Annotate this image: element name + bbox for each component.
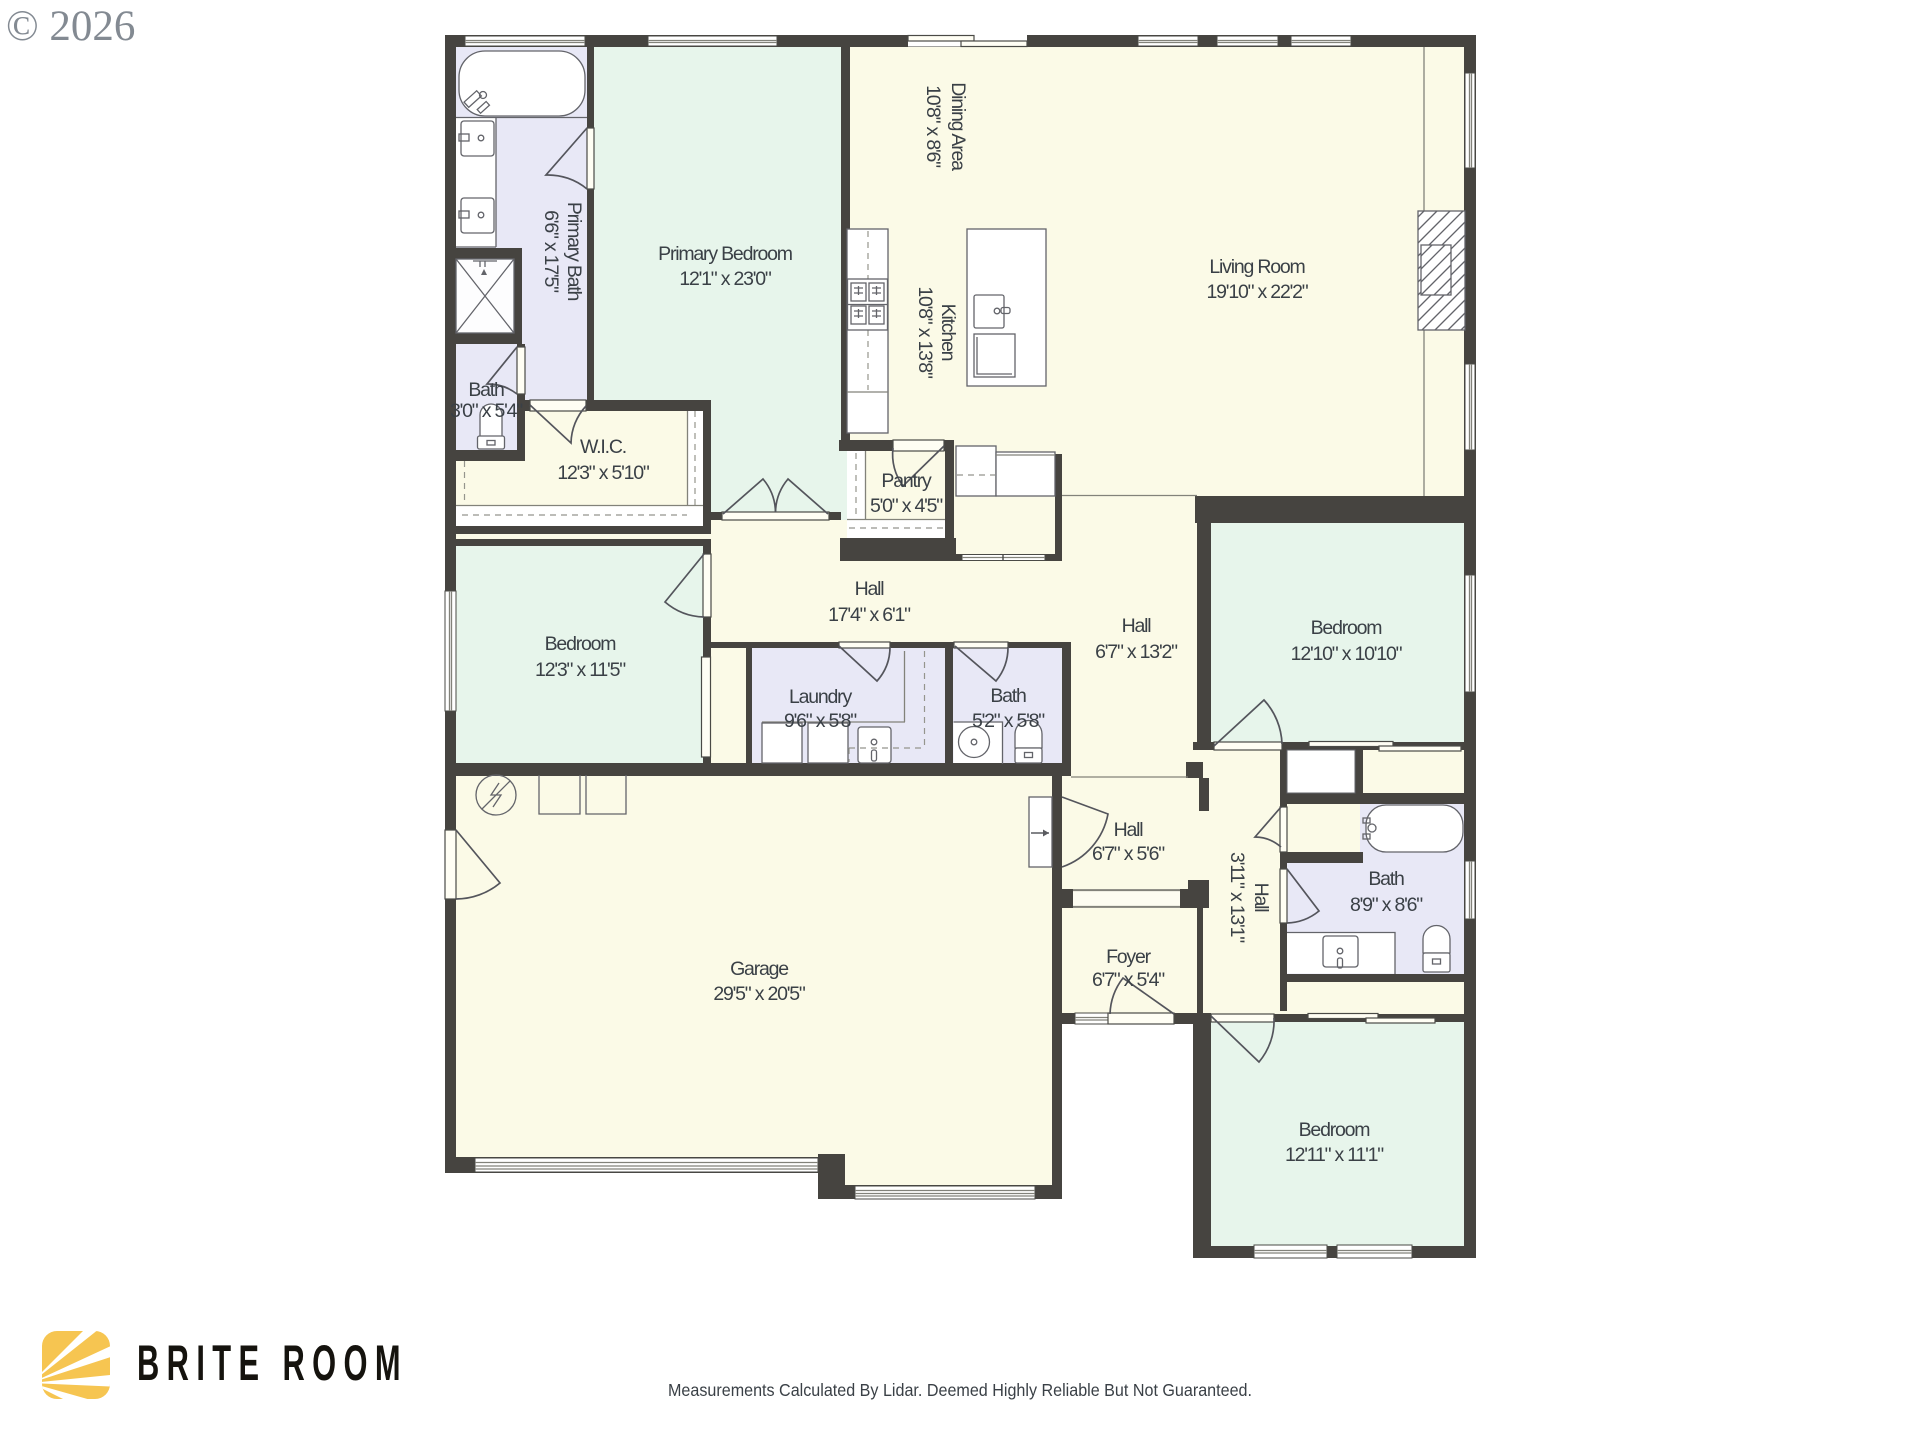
- svg-text:Pantry: Pantry: [881, 470, 932, 492]
- svg-text:12'1" x 23'0": 12'1" x 23'0": [679, 268, 772, 290]
- svg-text:Hall: Hall: [1250, 883, 1272, 913]
- svg-text:19'10" x 22'2": 19'10" x 22'2": [1207, 281, 1309, 303]
- svg-text:3'11" x 13'1": 3'11" x 13'1": [1226, 852, 1248, 943]
- svg-text:Bath: Bath: [990, 685, 1026, 707]
- svg-text:Bath: Bath: [468, 379, 504, 401]
- svg-text:3'0" x 5'4": 3'0" x 5'4": [450, 400, 523, 422]
- svg-text:© 2026: © 2026: [6, 3, 135, 50]
- svg-text:10'8" x 8'6": 10'8" x 8'6": [922, 85, 944, 168]
- svg-text:5'0" x 4'5": 5'0" x 4'5": [870, 495, 943, 517]
- svg-text:Measurements Calculated By Lid: Measurements Calculated By Lidar. Deemed…: [668, 1380, 1252, 1400]
- svg-text:17'4" x 6'1": 17'4" x 6'1": [828, 604, 911, 626]
- svg-text:5'2" x 5'8": 5'2" x 5'8": [972, 710, 1045, 732]
- svg-text:Bedroom: Bedroom: [1311, 617, 1382, 639]
- svg-text:12'3" x 5'10": 12'3" x 5'10": [557, 462, 650, 484]
- svg-text:12'3" x 11'5": 12'3" x 11'5": [535, 659, 626, 681]
- svg-text:6'7" x 5'4": 6'7" x 5'4": [1092, 969, 1165, 991]
- svg-text:Kitchen: Kitchen: [937, 304, 959, 361]
- svg-text:Primary Bedroom: Primary Bedroom: [658, 243, 792, 265]
- svg-text:9'6" x 5'8": 9'6" x 5'8": [784, 710, 857, 732]
- svg-text:Hall: Hall: [1114, 819, 1144, 841]
- svg-text:Garage: Garage: [730, 958, 788, 980]
- svg-text:Hall: Hall: [1122, 615, 1152, 637]
- svg-text:6'6" x 17'5": 6'6" x 17'5": [540, 210, 562, 293]
- svg-text:Dining Area: Dining Area: [947, 82, 969, 171]
- svg-text:Bedroom: Bedroom: [545, 633, 616, 655]
- svg-text:Bath: Bath: [1368, 868, 1404, 890]
- svg-text:10'8" x 13'8": 10'8" x 13'8": [914, 286, 936, 379]
- svg-text:29'5" x 20'5": 29'5" x 20'5": [713, 983, 806, 1005]
- svg-text:Bedroom: Bedroom: [1299, 1119, 1370, 1141]
- svg-text:8'9" x 8'6": 8'9" x 8'6": [1350, 894, 1423, 916]
- svg-text:Hall: Hall: [855, 578, 885, 600]
- svg-text:Laundry: Laundry: [789, 686, 853, 708]
- svg-text:BRITE ROOM: BRITE ROOM: [137, 1335, 408, 1391]
- svg-text:Foyer: Foyer: [1106, 946, 1152, 968]
- svg-text:Living Room: Living Room: [1209, 256, 1304, 278]
- svg-text:12'11" x 11'1": 12'11" x 11'1": [1285, 1144, 1384, 1166]
- svg-text:6'7" x 5'6": 6'7" x 5'6": [1092, 843, 1165, 865]
- svg-text:W.I.C.: W.I.C.: [580, 436, 626, 458]
- svg-text:6'7" x 13'2": 6'7" x 13'2": [1095, 641, 1178, 663]
- svg-text:12'10" x 10'10": 12'10" x 10'10": [1291, 643, 1403, 665]
- svg-text:Primary Bath: Primary Bath: [563, 202, 585, 301]
